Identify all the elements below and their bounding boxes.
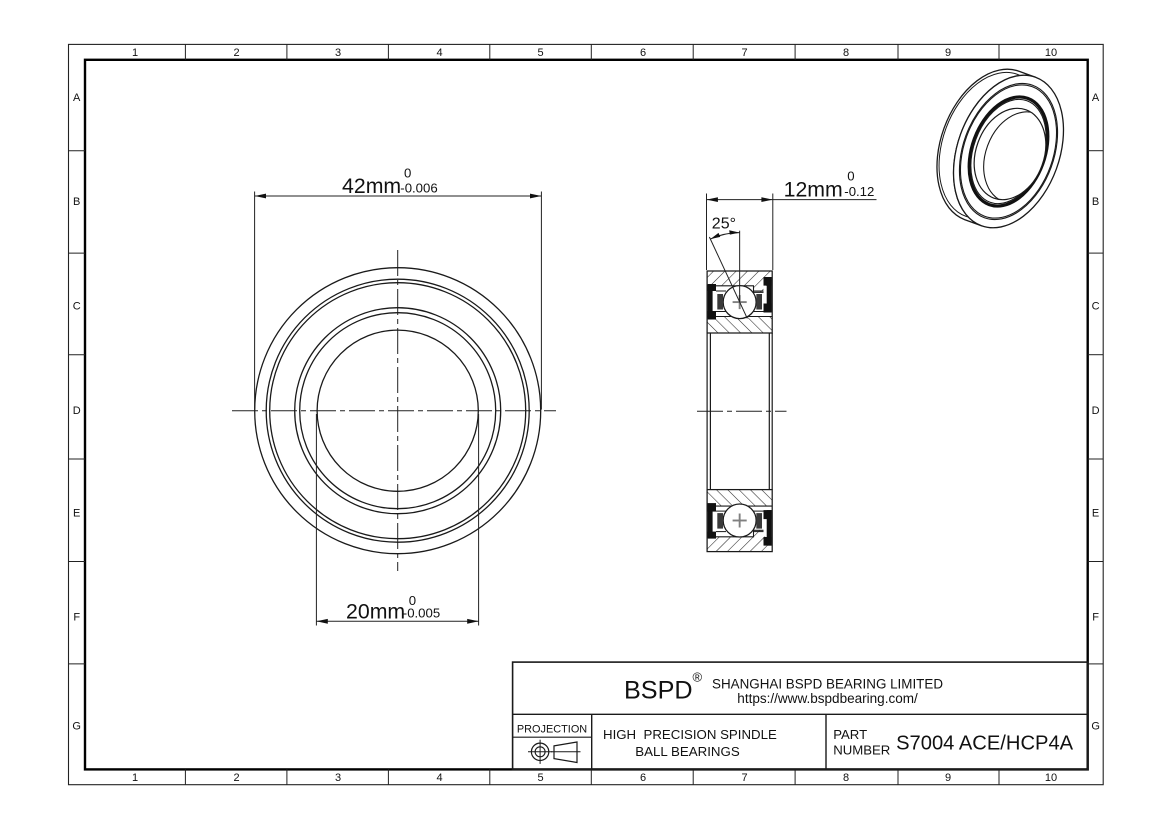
svg-text:9: 9 [945, 47, 951, 59]
svg-text:5: 5 [537, 47, 543, 59]
svg-text:https://www.bspdbearing.com/: https://www.bspdbearing.com/ [737, 691, 918, 706]
svg-text:PART: PART [833, 727, 867, 742]
svg-text:7: 7 [741, 47, 747, 59]
svg-text:3: 3 [335, 772, 341, 784]
svg-text:5: 5 [537, 772, 543, 784]
svg-text:F: F [1092, 612, 1099, 624]
svg-text:10: 10 [1045, 47, 1057, 59]
svg-text:C: C [73, 301, 81, 313]
svg-text:-0.006: -0.006 [400, 181, 437, 196]
svg-text:9: 9 [945, 772, 951, 784]
svg-text:20mm: 20mm [346, 599, 405, 623]
svg-text:E: E [73, 508, 80, 520]
svg-text:BALL BEARINGS: BALL BEARINGS [635, 744, 740, 759]
svg-text:1: 1 [132, 772, 138, 784]
svg-text:G: G [72, 721, 81, 733]
svg-text:D: D [1092, 405, 1100, 417]
svg-text:A: A [1092, 92, 1100, 104]
svg-text:2: 2 [233, 772, 239, 784]
svg-text:G: G [1091, 721, 1100, 733]
svg-text:D: D [73, 405, 81, 417]
svg-text:2: 2 [233, 47, 239, 59]
svg-text:4: 4 [436, 47, 442, 59]
svg-text:B: B [1092, 196, 1099, 208]
svg-text:F: F [73, 612, 80, 624]
svg-text:-0.005: -0.005 [403, 605, 440, 620]
svg-text:8: 8 [843, 772, 849, 784]
svg-text:42mm: 42mm [342, 174, 401, 198]
svg-text:-0.12: -0.12 [844, 184, 874, 199]
svg-text:NUMBER: NUMBER [833, 743, 890, 758]
svg-text:B: B [73, 196, 80, 208]
svg-text:1: 1 [132, 47, 138, 59]
svg-text:10: 10 [1045, 772, 1057, 784]
svg-text:S7004 ACE/HCP4A: S7004 ACE/HCP4A [896, 732, 1073, 755]
svg-text:E: E [1092, 508, 1099, 520]
svg-text:6: 6 [640, 47, 646, 59]
svg-text:0: 0 [404, 165, 411, 180]
svg-text:PROJECTION: PROJECTION [517, 724, 587, 736]
svg-text:0: 0 [847, 168, 854, 183]
svg-text:C: C [1092, 301, 1100, 313]
svg-text:8: 8 [843, 47, 849, 59]
svg-text:4: 4 [436, 772, 442, 784]
svg-text:SHANGHAI BSPD BEARING LIMITED: SHANGHAI BSPD BEARING LIMITED [712, 677, 943, 692]
svg-text:25°: 25° [712, 216, 736, 233]
svg-text:BSPD: BSPD [624, 677, 693, 705]
svg-text:12mm: 12mm [784, 178, 843, 202]
svg-text:HIGH PRECISION SPINDLE: HIGH PRECISION SPINDLE [603, 727, 777, 742]
svg-text:6: 6 [640, 772, 646, 784]
svg-text:A: A [73, 92, 81, 104]
svg-text:3: 3 [335, 47, 341, 59]
svg-text:7: 7 [741, 772, 747, 784]
svg-text:®: ® [693, 670, 703, 685]
